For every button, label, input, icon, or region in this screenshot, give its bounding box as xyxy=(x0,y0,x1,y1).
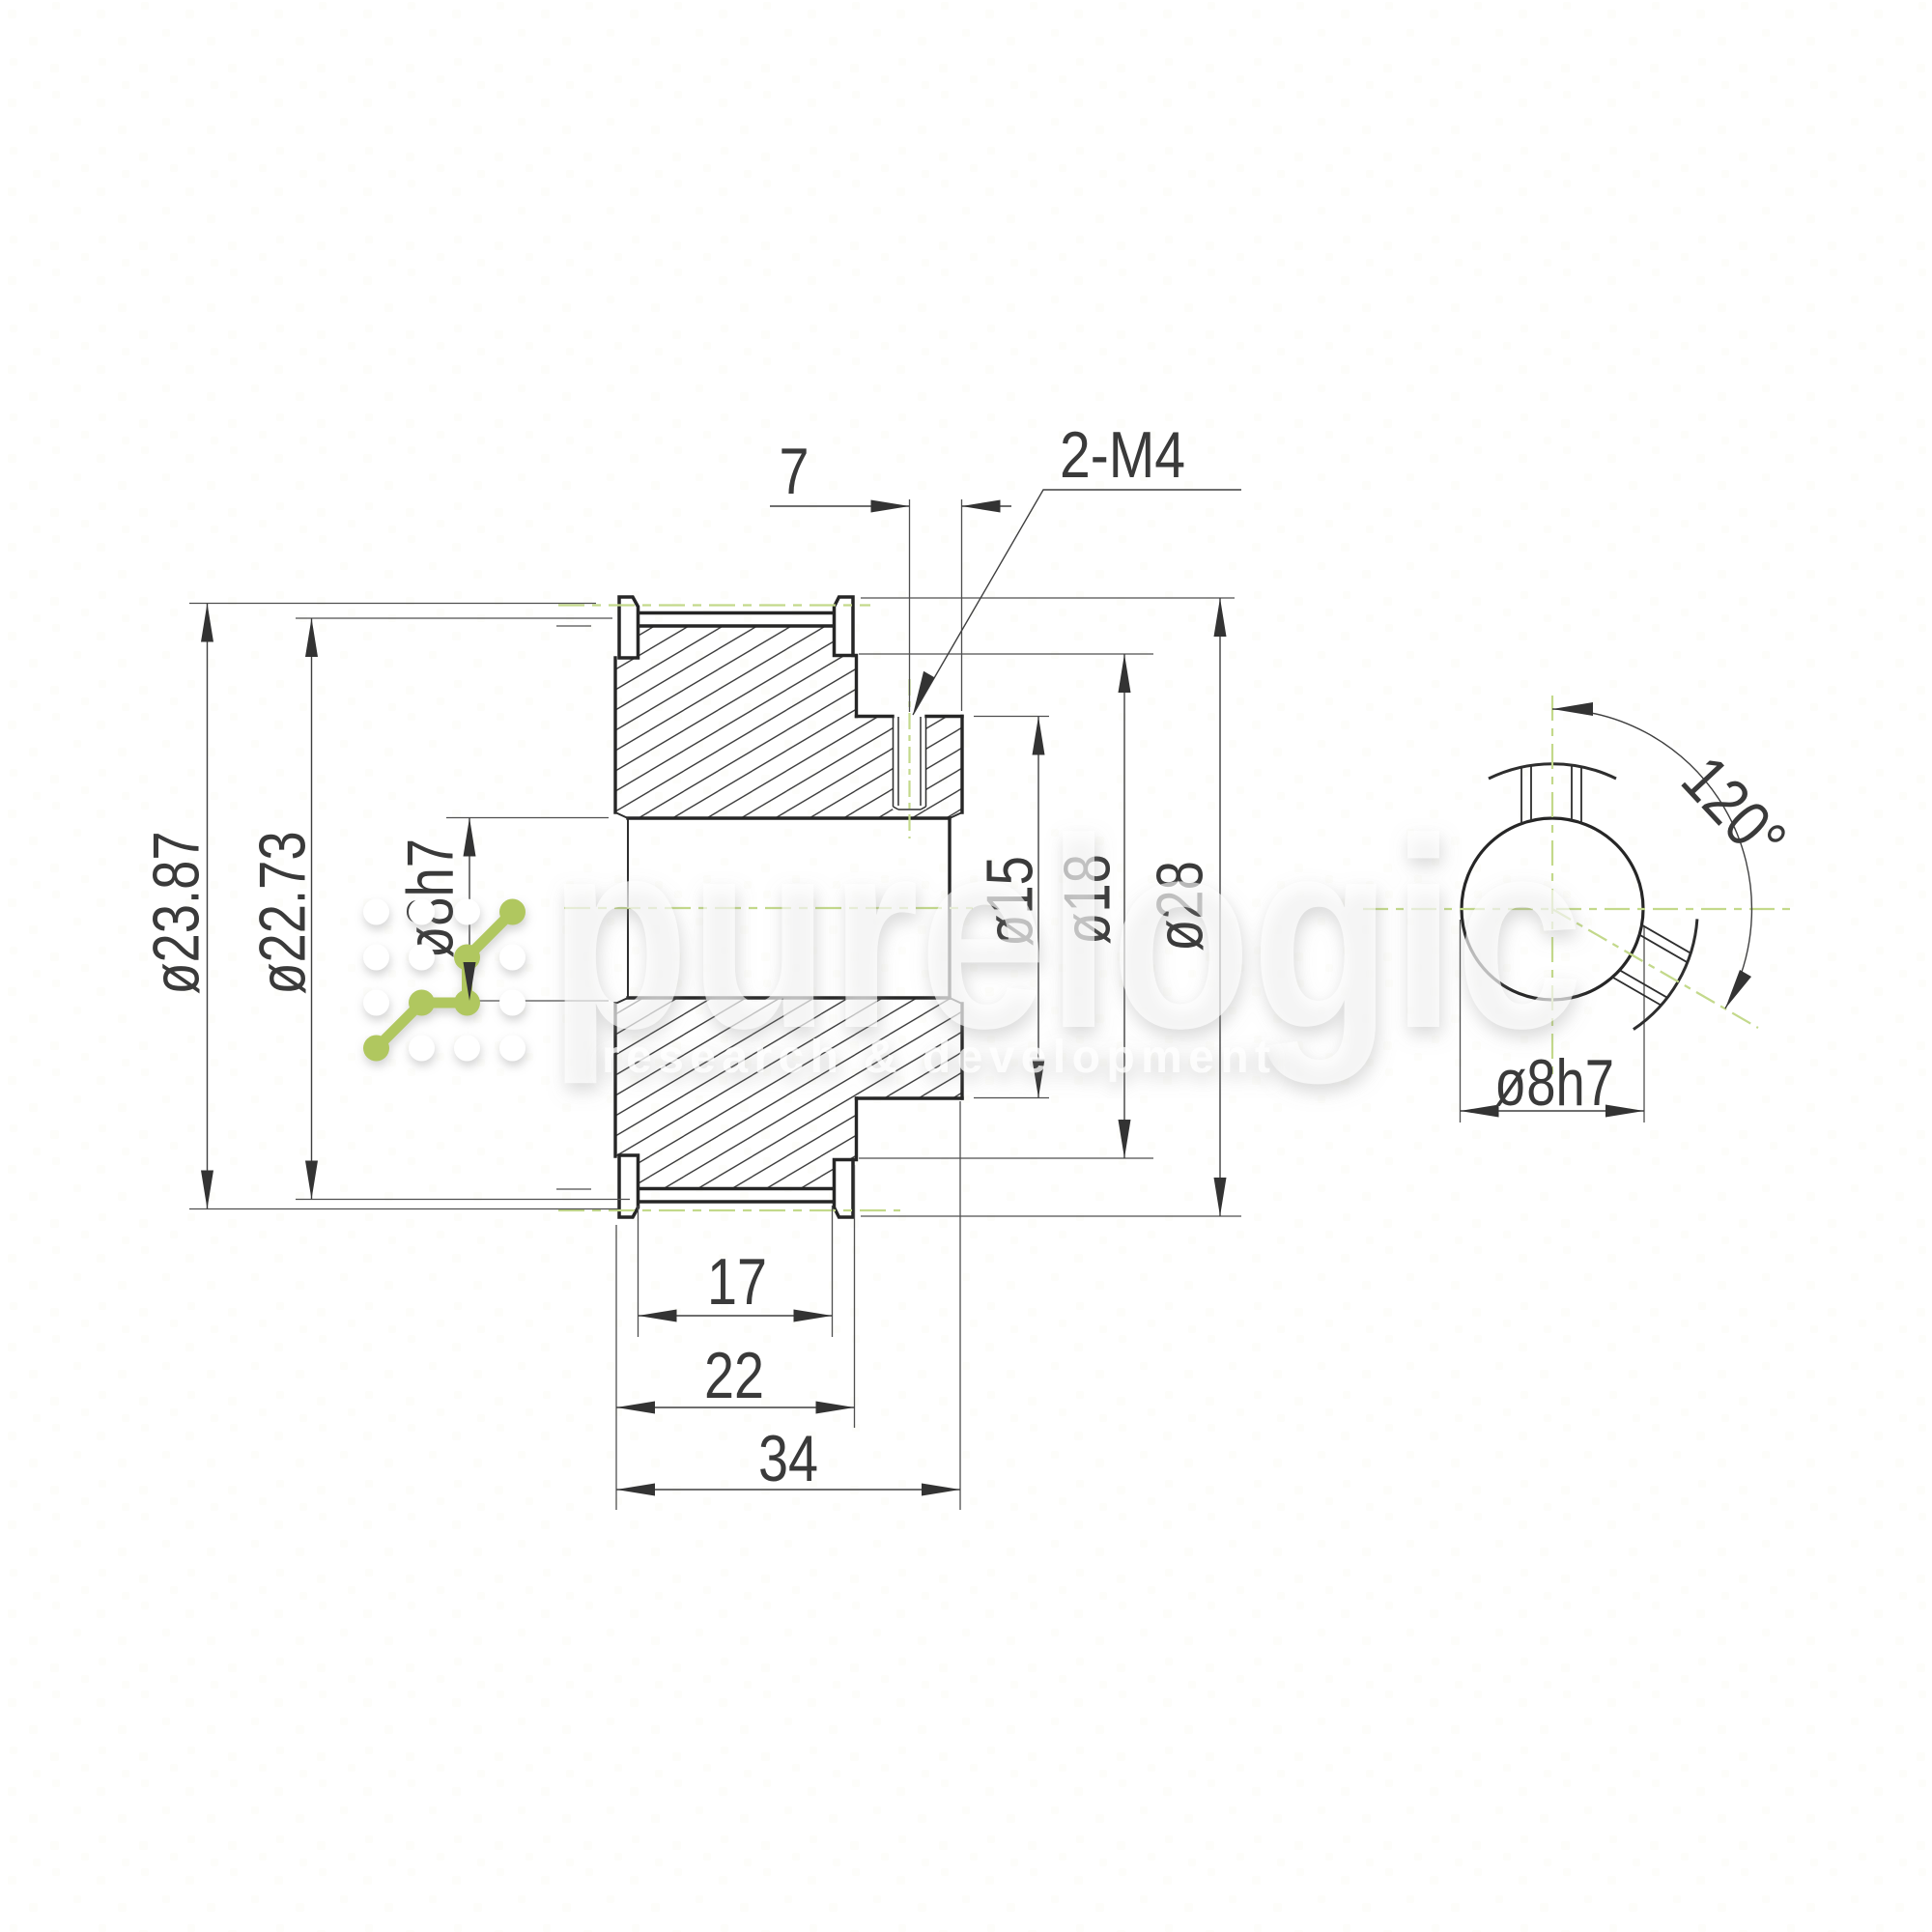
svg-text:research & development: research & development xyxy=(602,1032,1276,1083)
svg-text:ø23.87: ø23.87 xyxy=(140,831,213,994)
svg-text:ø8h7: ø8h7 xyxy=(394,838,468,958)
svg-text:2-M4: 2-M4 xyxy=(1060,418,1185,492)
svg-text:34: 34 xyxy=(758,1423,818,1495)
svg-text:17: 17 xyxy=(707,1246,767,1319)
svg-text:7: 7 xyxy=(779,436,809,508)
svg-text:ø22.73: ø22.73 xyxy=(246,831,320,994)
svg-text:22: 22 xyxy=(704,1340,764,1412)
